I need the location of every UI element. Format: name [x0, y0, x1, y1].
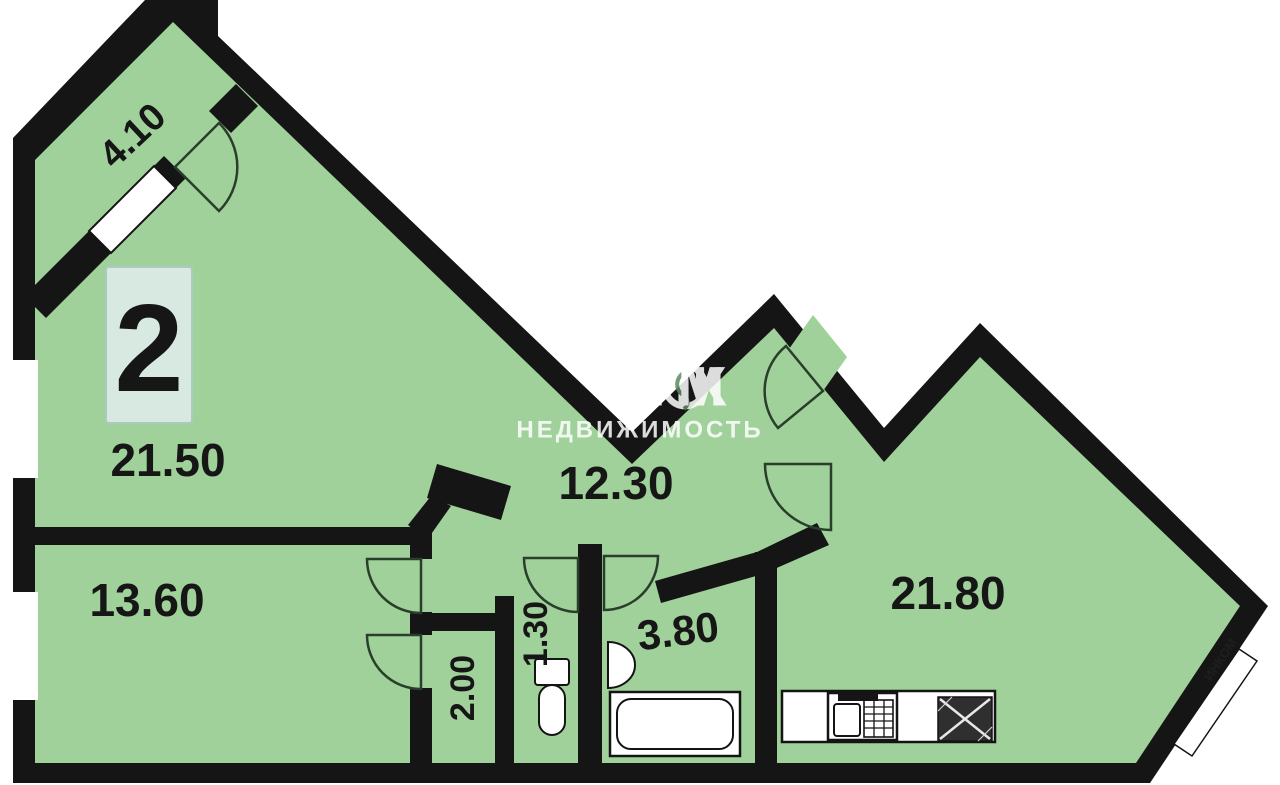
room-label-hallway: 12.30 — [558, 457, 673, 509]
wall-living-bedroom — [35, 527, 430, 545]
room-label-wc: 1.30 — [517, 601, 555, 667]
room-label-kitchen-living: 21.80 — [890, 567, 1005, 619]
stove — [938, 697, 992, 741]
kitchen-sink-bowl — [834, 704, 860, 736]
room-label-bedroom: 13.60 — [89, 574, 204, 626]
toilet-bowl — [539, 685, 565, 735]
wall-storage-wc — [495, 596, 514, 763]
floor-plan-canvas: 2 4.10 21.50 12.30 13.60 2.00 1.30 3.80 … — [0, 0, 1280, 785]
bathtub — [610, 692, 740, 756]
wall-bathroom-kitchen — [755, 552, 777, 763]
apartment-number-badge: 2 — [106, 267, 192, 423]
watermark-subtitle: НЕДВИЖИМОСТЬ — [516, 417, 763, 444]
window-left-upper — [9, 360, 38, 478]
room-label-storage: 2.00 — [444, 655, 482, 721]
watermark-brand-right: М — [678, 355, 727, 418]
apartment-number: 2 — [115, 280, 184, 418]
kitchen-counter — [782, 691, 995, 742]
wall-wc-bathroom — [578, 544, 602, 763]
room-label-living-room: 21.50 — [110, 434, 225, 486]
wall-bedroom-hall-3 — [410, 688, 432, 765]
room-label-bathroom: 3.80 — [635, 603, 722, 660]
storage-top-wall — [418, 613, 497, 631]
floor-plan-screenshot: 2 4.10 21.50 12.30 13.60 2.00 1.30 3.80 … — [0, 0, 1280, 785]
bathtub-inner — [617, 699, 733, 749]
toilet — [535, 659, 569, 735]
window-left-lower — [9, 592, 38, 700]
